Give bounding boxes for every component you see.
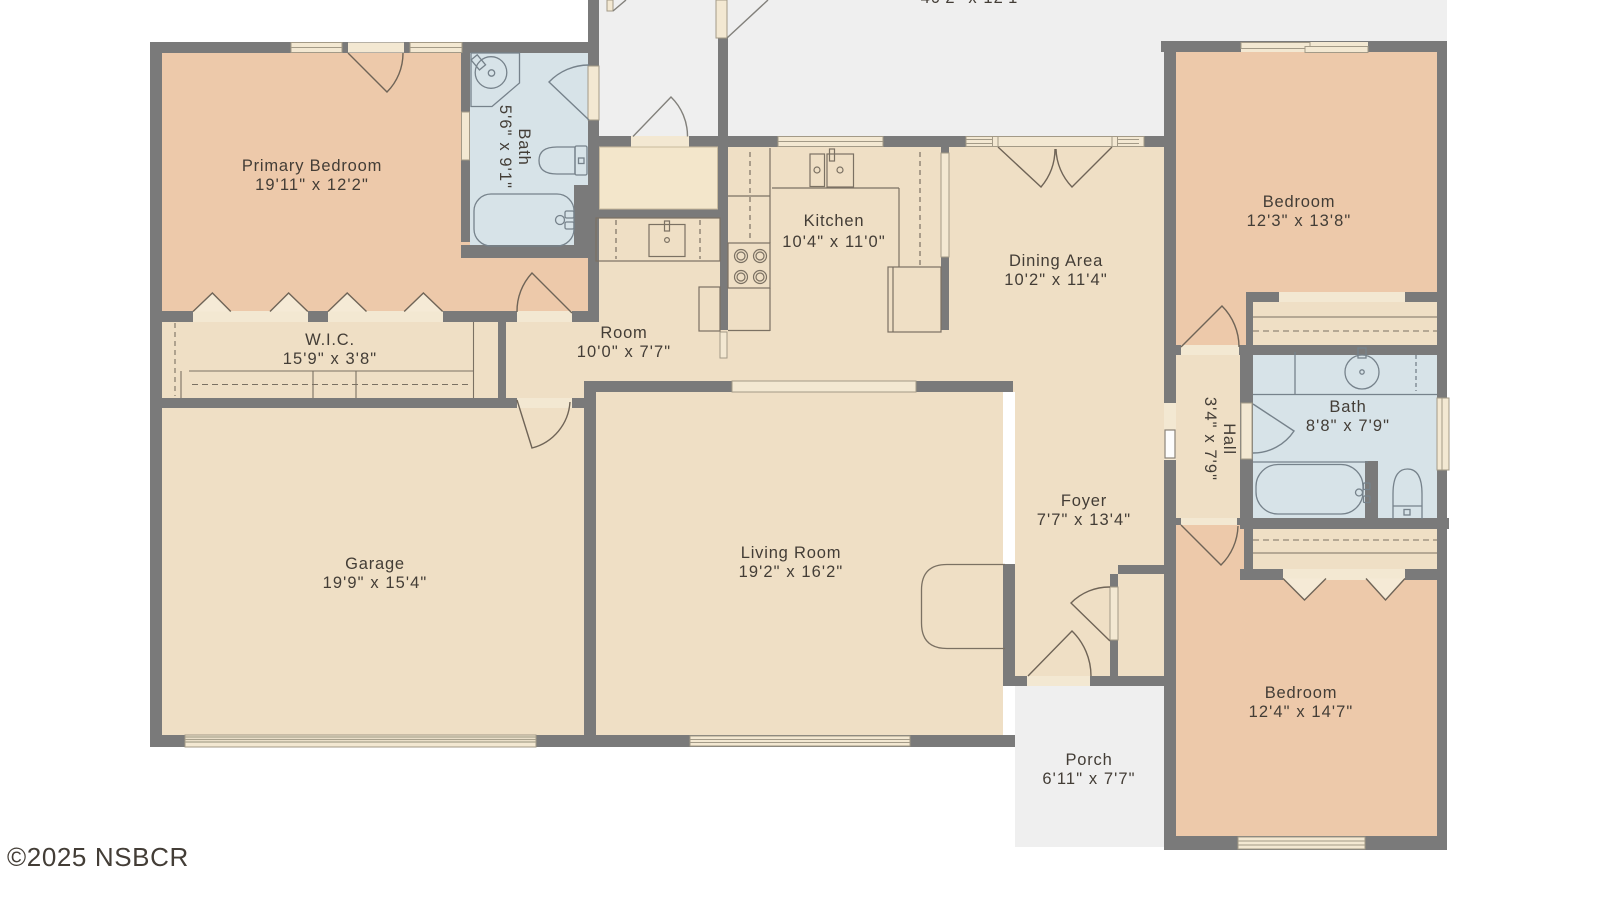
svg-text:Porch: Porch <box>1065 751 1112 769</box>
svg-text:10'4" x 11'0": 10'4" x 11'0" <box>782 233 886 251</box>
svg-text:W.I.C.: W.I.C. <box>305 331 355 349</box>
svg-text:Hall: Hall <box>1220 423 1238 455</box>
svg-text:Bedroom: Bedroom <box>1265 684 1338 702</box>
svg-text:12'4" x 14'7": 12'4" x 14'7" <box>1249 703 1354 721</box>
svg-text:10'0" x 7'7": 10'0" x 7'7" <box>577 343 672 361</box>
svg-text:Room: Room <box>600 324 647 342</box>
svg-text:5'6" x 9'1": 5'6" x 9'1" <box>496 105 514 189</box>
svg-text:Living Room: Living Room <box>741 544 842 562</box>
svg-text:©2025 NSBCR: ©2025 NSBCR <box>7 842 189 872</box>
svg-text:19'2" x 16'2": 19'2" x 16'2" <box>739 563 844 581</box>
svg-text:Bath: Bath <box>515 128 533 165</box>
svg-text:Bath: Bath <box>1329 398 1366 416</box>
svg-text:Dining Area: Dining Area <box>1009 252 1103 270</box>
svg-text:19'11" x 12'2": 19'11" x 12'2" <box>255 176 369 194</box>
svg-text:Garage: Garage <box>345 555 405 573</box>
svg-text:Kitchen: Kitchen <box>804 212 865 230</box>
svg-text:7'7" x 13'4": 7'7" x 13'4" <box>1037 511 1132 529</box>
svg-text:15'9" x 3'8": 15'9" x 3'8" <box>283 350 378 368</box>
svg-text:8'8" x 7'9": 8'8" x 7'9" <box>1306 417 1390 435</box>
svg-text:19'9" x 15'4": 19'9" x 15'4" <box>323 574 428 592</box>
svg-text:12'3" x 13'8": 12'3" x 13'8" <box>1247 212 1352 230</box>
svg-text:40'2" x 12'1": 40'2" x 12'1" <box>921 0 1026 7</box>
svg-text:10'2" x 11'4": 10'2" x 11'4" <box>1004 271 1108 289</box>
svg-text:3'4" x 7'9": 3'4" x 7'9" <box>1201 397 1219 481</box>
svg-text:Foyer: Foyer <box>1061 492 1107 510</box>
svg-text:Bedroom: Bedroom <box>1263 193 1336 211</box>
svg-text:Primary Bedroom: Primary Bedroom <box>242 157 382 175</box>
svg-text:6'11" x 7'7": 6'11" x 7'7" <box>1042 770 1135 788</box>
